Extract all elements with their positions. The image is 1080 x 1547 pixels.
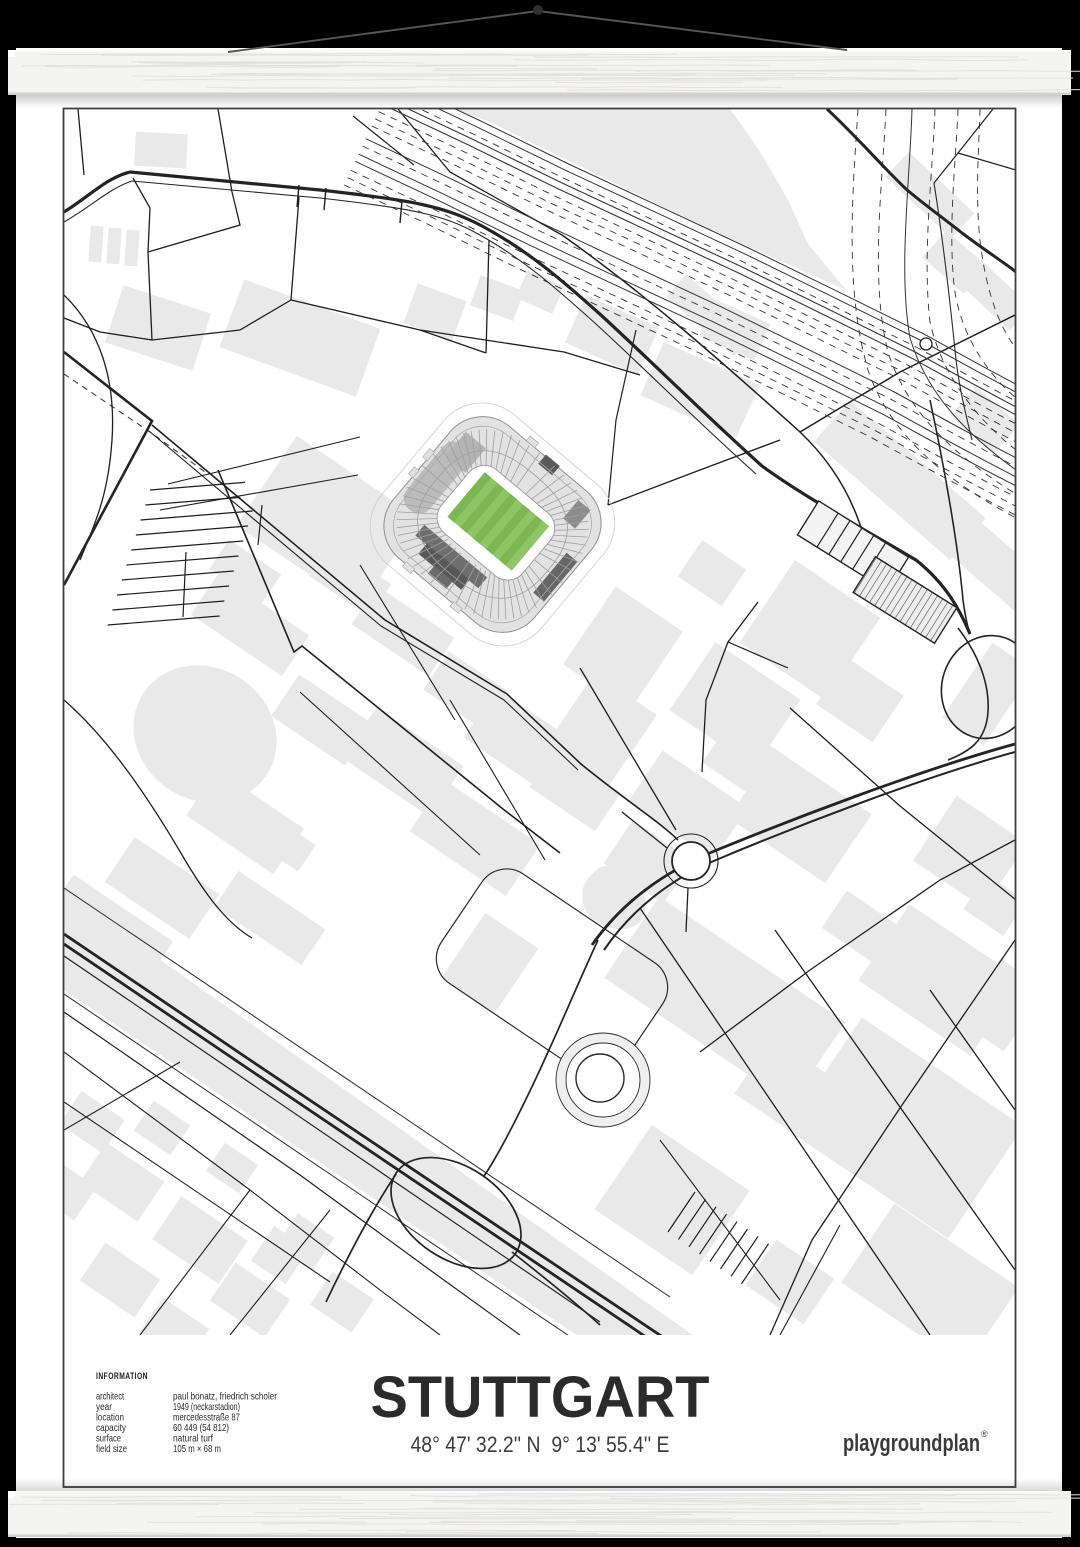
svg-text:®: ® (981, 1429, 988, 1439)
svg-text:105 m × 68 m: 105 m × 68 m (173, 1443, 221, 1455)
svg-text:field size: field size (96, 1443, 127, 1455)
svg-text:playgroundplan: playgroundplan (843, 1430, 980, 1457)
svg-text:STUTTGART: STUTTGART (371, 1365, 710, 1430)
svg-text:INFORMATION: INFORMATION (96, 1371, 148, 1381)
svg-text:48° 47' 32.2'' N 9° 13' 55.4': 48° 47' 32.2'' N 9° 13' 55.4'' E (411, 1432, 670, 1457)
